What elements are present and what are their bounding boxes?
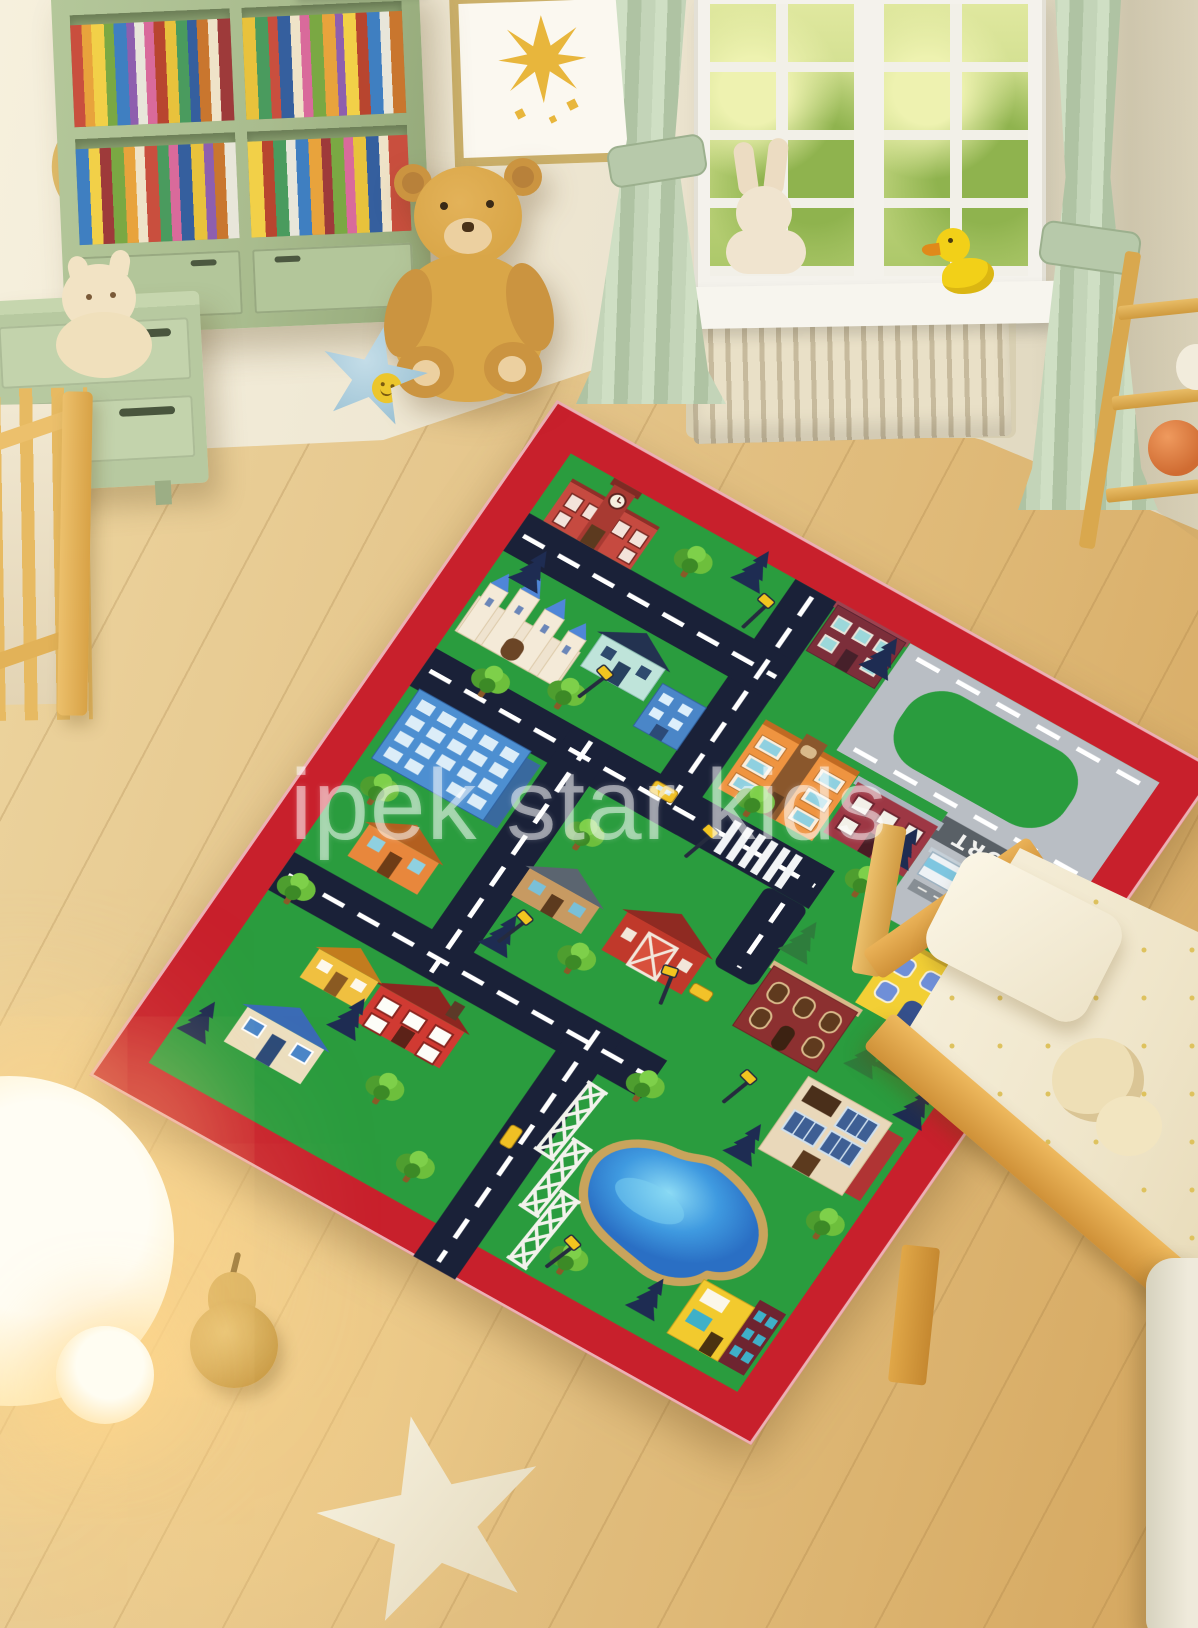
bookshelf-cubby xyxy=(75,132,239,245)
bookshelf-cubby xyxy=(242,1,407,120)
bunny-plush xyxy=(720,142,812,266)
kids-room-scene: AIRPORT xyxy=(0,0,1198,1628)
bed-plush-toy xyxy=(1096,1096,1162,1156)
window-sill xyxy=(682,281,1059,330)
furniture-leg xyxy=(155,480,172,505)
bookshelf-cubby xyxy=(247,125,411,238)
crib-post xyxy=(57,391,93,715)
sun-artwork xyxy=(497,14,588,105)
picture-frame xyxy=(449,0,645,167)
cat-plush xyxy=(52,250,192,380)
watermark-text: ipek star kids xyxy=(290,748,888,863)
hanging-blanket xyxy=(1146,1258,1198,1628)
books-row xyxy=(70,18,234,127)
crib xyxy=(0,387,107,721)
orange-ball xyxy=(1148,420,1198,476)
duck-head xyxy=(936,228,970,262)
books-row xyxy=(247,135,411,238)
felt-pear xyxy=(190,1302,278,1388)
teddy-bear xyxy=(392,158,552,402)
duck-eye xyxy=(948,238,953,243)
bookshelf-cubby xyxy=(70,8,235,127)
sphere-lamp-small xyxy=(56,1326,154,1424)
books-row xyxy=(242,11,406,120)
books-row xyxy=(76,142,240,245)
